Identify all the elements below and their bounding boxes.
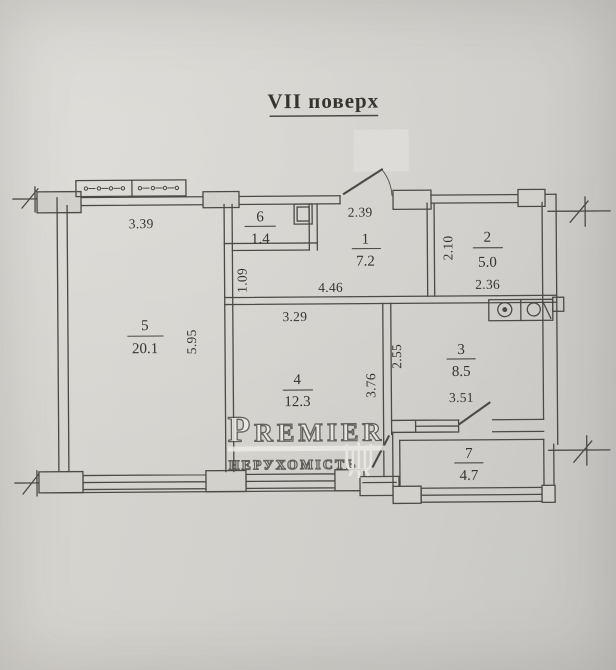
watermark-subtitle: нерухомість bbox=[229, 457, 358, 473]
window-bottom-center-icon bbox=[246, 474, 337, 489]
dim-room4-top: 3.29 bbox=[282, 309, 307, 324]
kitchen-loggia-window-icon bbox=[392, 420, 459, 432]
watermark: Premier нерухомість bbox=[227, 408, 385, 477]
sink-stove-icon bbox=[489, 297, 564, 321]
dim-room2-left: 2.10 bbox=[440, 236, 455, 261]
room-number: 1 bbox=[361, 232, 369, 248]
watermark-brand: Premier bbox=[227, 408, 385, 450]
wall-break-tick-top-right bbox=[548, 197, 610, 226]
wall-room6-bottom bbox=[224, 243, 317, 251]
floor-title: VII поверх bbox=[267, 88, 379, 113]
room-5-label: 5 20.1 bbox=[132, 318, 159, 357]
page-title: VII поверх bbox=[267, 88, 379, 113]
dim-room3-bottom: 3.51 bbox=[449, 390, 474, 405]
loggia-walls bbox=[391, 402, 610, 504]
window-top-icon bbox=[76, 180, 186, 197]
floor-plan: VII поверх bbox=[0, 0, 616, 670]
room-number: 3 bbox=[457, 342, 465, 358]
exterior-wall-left bbox=[57, 198, 69, 493]
room-number: 6 bbox=[256, 209, 264, 225]
room-number: 2 bbox=[483, 230, 491, 246]
wall-room4-room3 bbox=[383, 303, 392, 476]
entry-door bbox=[344, 169, 392, 195]
dim-room3-left: 2.55 bbox=[389, 344, 404, 369]
room-number: 7 bbox=[465, 446, 473, 462]
scan-photo: VII поверх bbox=[0, 0, 616, 670]
room-area: 20.1 bbox=[132, 341, 158, 357]
room-7-label: 7 4.7 bbox=[459, 446, 479, 484]
entry-door-arc bbox=[382, 169, 392, 195]
exterior-wall-right bbox=[542, 194, 558, 444]
room-4-label: 4 12.3 bbox=[284, 372, 311, 410]
loggia-glazing-icon bbox=[393, 485, 555, 503]
room-number: 4 bbox=[293, 372, 301, 388]
entry-door-leaf bbox=[344, 169, 382, 193]
dim-room4-right: 3.76 bbox=[363, 373, 378, 398]
room-6-label: 6 1.4 bbox=[251, 209, 271, 247]
dim-room1-top: 2.39 bbox=[348, 205, 373, 220]
room-area: 8.5 bbox=[452, 364, 471, 380]
dim-room6-wall: 1.09 bbox=[234, 268, 249, 293]
room-area: 7.2 bbox=[356, 254, 375, 270]
kitchen-balcony-door-leaf bbox=[459, 403, 489, 424]
window-bottom-left-icon bbox=[83, 475, 208, 490]
dimension-labels: 3.39 2.39 4.46 2.36 3.29 3.51 1.09 2.10 … bbox=[129, 204, 501, 408]
wall-room1-room2 bbox=[427, 203, 435, 296]
dim-room5-top: 3.39 bbox=[129, 216, 154, 231]
ventilation-shaft-icon bbox=[294, 204, 312, 224]
exterior-wall-top bbox=[13, 168, 610, 230]
room-2-label: 2 5.0 bbox=[478, 230, 497, 271]
dim-room2-bottom: 2.36 bbox=[475, 277, 500, 292]
room-3-label: 3 8.5 bbox=[452, 342, 471, 380]
room-area: 1.4 bbox=[251, 231, 270, 247]
exterior-wall-bottom bbox=[15, 468, 399, 498]
redaction-box bbox=[354, 129, 409, 171]
title-underline bbox=[270, 116, 377, 117]
dim-room5-right: 5.95 bbox=[184, 329, 199, 354]
dim-room1-bottom: 4.46 bbox=[318, 280, 343, 295]
room-area: 5.0 bbox=[478, 255, 497, 271]
room-1-label: 1 7.2 bbox=[356, 232, 375, 270]
room-area: 4.7 bbox=[460, 468, 479, 484]
room-number: 5 bbox=[141, 318, 149, 334]
room-area: 12.3 bbox=[284, 394, 310, 410]
